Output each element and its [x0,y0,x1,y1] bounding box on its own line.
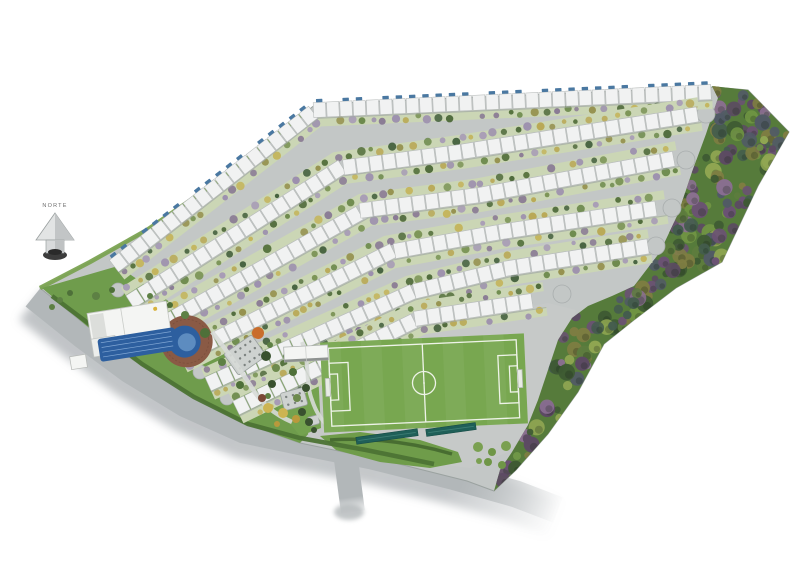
house-roof [577,211,591,228]
recreation-tree [236,381,244,389]
yard-tree [263,244,272,253]
yard-tree [444,183,452,191]
forest-tree [712,257,720,265]
yard-tree [497,290,502,295]
house-unit [582,166,597,183]
yard-tree [574,107,579,112]
yard-tree [486,318,492,324]
house-roof [448,144,462,160]
yard-tree [521,214,527,220]
house-roof [595,164,610,181]
yard-tree [625,110,631,116]
house-roof [530,176,545,193]
yard-tree [562,119,567,124]
house-unit [658,83,671,102]
site-plan-rendering: NORTE [0,0,800,565]
house-roof [524,219,538,236]
house-roof [609,243,623,260]
house-roof [419,237,434,254]
yard-tree [298,136,304,142]
yard-tree [685,126,690,131]
plaza-tree [484,458,492,466]
yard-tree [231,312,236,317]
house-roof [622,241,636,258]
yard-tree [554,108,560,114]
yard-tree [451,209,456,214]
yard-tree [625,177,631,183]
house-unit [530,176,545,193]
house-unit [590,209,604,226]
forest-tree [565,355,575,365]
house-unit [379,96,392,115]
yard-tree [358,225,365,232]
forest-tree-shade [576,377,583,384]
house-unit [517,178,532,195]
yard-tree [653,173,660,180]
yard-tree [531,108,539,116]
yard-tree [263,230,268,235]
yard-tree [628,200,633,205]
house-roof [493,298,507,315]
forest-tree-shade [545,405,552,412]
house-roof [446,96,459,112]
yard-tree [519,153,524,158]
yard-tree [615,113,620,118]
plaza-tree [473,442,483,452]
yard-tree [585,117,592,124]
yard-tree [275,321,281,327]
solar-heater [489,91,496,95]
house-roof [526,92,539,108]
house-unit [473,95,486,111]
house-unit [606,119,620,136]
house-unit [619,117,633,134]
yard-tree [379,323,384,328]
yard-tree [213,230,218,235]
house-roof [660,151,675,168]
yard-tree [480,221,485,226]
yard-tree [293,310,300,317]
yard-tree [573,119,578,124]
house-unit [422,148,436,164]
house-unit [645,113,659,130]
house-unit [582,247,596,264]
forest-tree-shade [582,334,589,341]
yard-tree [397,144,404,151]
house-unit [479,300,493,317]
house-unit [622,241,636,258]
house-roof [590,209,604,226]
house-roof [425,193,439,209]
yard-tree [292,284,298,290]
house-roof [566,126,580,143]
house-unit [616,205,630,222]
house-unit [353,97,366,116]
forest-tree-shade [514,467,521,474]
yard-tree [294,210,299,215]
house-roof [659,86,672,102]
yard-tree [377,267,383,273]
recreation-tree [181,311,189,319]
house-unit [459,92,472,111]
house-roof [603,207,617,224]
yard-tree [570,230,577,237]
house-unit [461,142,475,159]
house-unit [569,169,584,186]
house-roof [438,191,452,207]
yard-tree [531,197,536,202]
house-roof [506,296,520,313]
mowing-stripe [361,340,385,431]
recreation-tree [147,293,153,299]
yard-tree [284,183,290,189]
house-roof [540,130,554,147]
forest-tree-shade [768,160,776,168]
yard-tree [169,255,177,263]
house-unit [448,144,462,160]
forest-tree-shade [581,362,588,369]
forest-tree [783,131,791,139]
house-roof [419,97,432,113]
house-unit [543,253,557,270]
yard-tree [407,258,412,263]
yard-tree [531,149,538,156]
forest-tree-shade [690,224,697,231]
house-roof [592,122,606,139]
entry-road [345,452,353,512]
house-roof [485,225,500,242]
house-unit [526,92,539,108]
yard-tree [299,279,304,284]
forest-tree-shade [691,198,698,205]
yard-tree [236,182,244,190]
forest-tree-shade [718,129,726,137]
yard-tree [583,266,588,271]
forest-tree-shade [724,156,731,163]
yard-tree [638,175,645,182]
house-unit [485,225,500,242]
yard-tree [548,234,554,240]
house-roof [606,119,620,136]
yard-tree [240,261,246,267]
house-unit [630,203,644,220]
house-roof [356,157,370,173]
house-unit [658,111,672,128]
yard-tree [610,183,615,188]
forest-tree-shade [596,327,602,333]
house-roof [527,132,541,149]
yard-tree [315,301,321,307]
yard-tree [200,237,207,244]
house-roof [582,166,597,183]
yard-tree [191,245,197,251]
cul-de-sac [663,199,681,217]
yard-tree [536,284,542,290]
solar-heater [409,95,416,99]
mowing-stripe [442,336,466,427]
house-unit [579,124,593,141]
recreation-tree [305,418,313,426]
house-unit [427,308,441,325]
yard-tree [424,138,432,146]
forest-tree-shade [677,244,683,250]
plaza-tree [513,452,521,460]
yard-tree [487,246,493,252]
yard-tree [236,246,242,252]
yard-tree [283,317,290,324]
forest-tree [616,296,623,303]
yard-tree [496,174,503,181]
house-unit [438,191,452,207]
yard-tree [372,117,377,122]
yard-tree [331,312,336,317]
recreation-tree [252,327,264,339]
yard-tree [517,240,524,247]
house-roof [473,95,486,111]
house-roof [369,155,383,171]
yard-tree [274,399,280,405]
yard-tree [258,409,263,414]
house-unit [565,87,578,106]
house-roof [517,178,532,195]
house-unit [503,181,518,198]
yard-tree [256,300,263,307]
yard-tree [544,244,551,251]
yard-tree [213,325,218,330]
solar-heater [316,99,323,103]
yard-tree [338,205,345,212]
house-unit [451,190,465,206]
yard-tree [602,116,608,122]
solar-heater [568,87,575,91]
house-roof [498,223,512,240]
solar-heater [608,86,615,90]
yard-tree [473,258,481,266]
house-unit [393,95,406,114]
yard-tree [468,180,476,188]
house-roof [500,136,514,153]
house-unit [440,306,454,323]
house-roof [566,91,579,107]
yard-tree [216,260,221,265]
forest-tree-shade [732,108,739,115]
yard-tree [504,251,511,258]
yard-tree [251,202,259,210]
yard-tree [312,275,318,281]
house-unit [519,294,533,311]
forest-tree-shade [732,228,738,234]
house-roof [503,260,517,277]
forest-tree [757,144,764,151]
forest-tree [760,136,768,144]
house-unit [382,153,396,169]
yard-tree [457,266,463,272]
recreation-tree [92,292,100,300]
yard-tree [490,179,495,184]
house-unit [472,227,487,244]
house-unit [498,223,512,240]
house-unit [359,202,373,218]
forest-tree [742,186,751,195]
house-roof [619,88,632,104]
solar-heater [342,98,349,102]
yard-tree [222,195,228,201]
compass-rose: NORTE [36,203,74,260]
goal-left [325,378,330,396]
yard-tree [379,118,386,125]
forest-tree [702,154,710,162]
solar-heater [435,93,442,97]
yard-tree [346,253,354,261]
yard-tree [545,193,550,198]
house-roof [514,134,528,151]
house-roof [519,294,533,311]
yard-tree [263,297,269,303]
forest-tree [563,381,572,390]
house-unit [511,221,525,238]
yard-tree [645,194,653,202]
yard-tree [219,272,225,278]
house-roof [592,89,605,105]
yard-tree [509,176,514,181]
yard-tree [446,269,451,274]
solar-heater [582,87,589,91]
house-roof [605,89,618,105]
yard-tree [483,295,488,300]
yard-tree [270,290,277,297]
yard-tree [123,284,130,291]
yard-tree [276,271,281,276]
yard-tree [585,141,592,148]
house-roof [569,169,584,186]
house-roof [406,98,419,114]
garden-tree [272,364,280,372]
house-roof [672,86,685,102]
yard-tree [340,259,346,265]
house-roof [427,308,441,325]
house-roof [479,300,493,317]
yard-tree [564,205,569,210]
house-unit [326,101,339,117]
forest-tree [527,429,534,436]
pool-hut [70,354,88,369]
forest-tree-shade [698,208,706,216]
yard-tree [409,142,417,150]
house-unit [477,186,492,203]
yard-tree [413,168,420,175]
house-unit [313,99,326,118]
yard-tree [600,182,606,188]
yard-tree [627,223,632,228]
house-unit [446,232,461,249]
house-unit [408,150,422,166]
house-roof [490,183,505,200]
forest-tree-shade [687,234,695,242]
house-roof [451,190,465,206]
house-unit [500,136,514,153]
yard-tree [311,251,317,257]
yard-tree [517,112,523,118]
yard-tree [161,258,169,266]
solar-heater [502,90,509,94]
house-roof [459,230,474,247]
solar-heater [622,85,629,89]
house-unit [566,126,580,143]
forest-tree-shade [622,326,627,331]
plaza-tree [501,441,511,451]
house-roof [486,94,499,110]
solar-heater [396,95,403,99]
mowing-stripe [483,334,507,425]
yard-tree [347,199,355,207]
garden-tree [268,380,276,388]
house-unit [645,84,658,103]
yard-tree [501,129,507,135]
garden-tree [293,394,301,402]
cul-de-sac [647,237,665,255]
yard-tree [307,127,312,132]
house-unit [608,161,623,178]
yard-tree [516,127,522,133]
yard-tree [214,278,219,283]
house-unit [553,128,567,145]
house-unit [643,201,657,218]
yard-tree [281,288,288,295]
house-roof [658,111,672,128]
yard-tree [414,230,422,238]
yard-tree [589,107,596,114]
house-unit [556,251,570,268]
yard-tree [366,243,372,249]
yard-tree [552,207,558,213]
recreation-tree [311,427,317,433]
yard-tree [572,266,580,274]
house-unit [366,100,379,116]
site-plan-page: NORTE [0,0,800,565]
yard-tree [488,128,496,136]
recreation-tree [274,421,280,427]
house-roof [393,98,406,114]
yard-tree [467,293,472,298]
yard-tree [388,189,394,195]
forest-tree-shade [562,336,568,342]
house-roof [422,148,436,164]
house-roof [595,245,609,262]
yard-tree [686,99,695,108]
house-unit [385,198,399,214]
house-unit [340,97,353,116]
yard-tree [285,214,290,219]
yard-tree [388,143,396,151]
yard-tree [367,325,372,330]
house-unit [684,107,698,124]
yard-tree [436,301,441,306]
recreation-tree [67,290,73,296]
house-roof [556,251,570,268]
yard-tree [654,133,659,138]
house-unit [538,217,552,234]
house-roof [464,188,478,204]
recreation-tree [292,415,300,423]
yard-tree [239,309,246,316]
yard-tree [436,255,441,260]
solar-heater [675,82,682,86]
house-unit [592,86,605,105]
yard-tree [314,216,322,224]
house-unit [487,138,501,155]
yard-tree [405,187,413,195]
house-roof [512,93,525,109]
